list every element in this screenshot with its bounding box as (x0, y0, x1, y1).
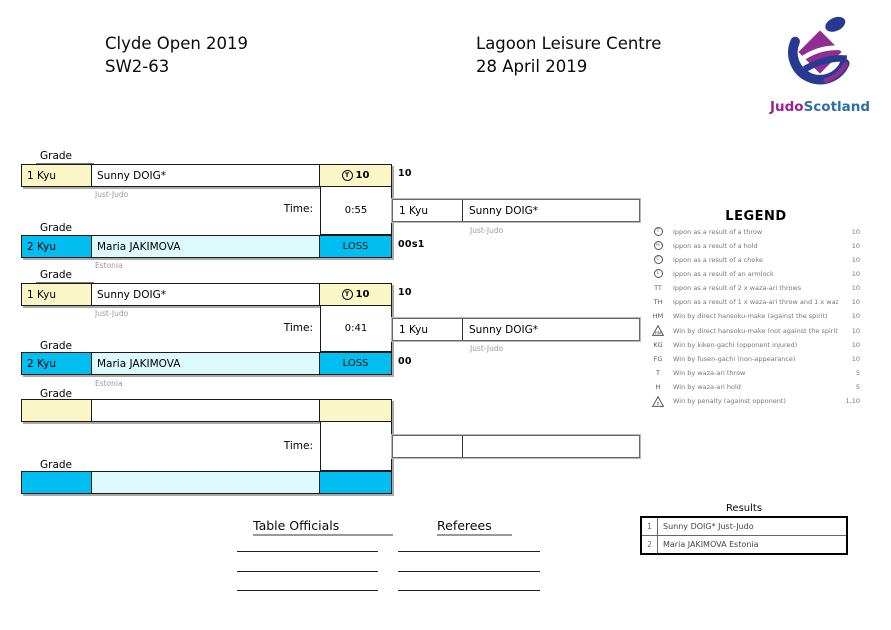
legend-text: Win by direct hansoku-make (not against … (666, 327, 838, 335)
match3-winner-box (392, 435, 640, 458)
outside-score: 00s1 (398, 239, 425, 250)
referees-label: Referees (437, 518, 512, 536)
legend-text: Win by fusen-gachi (non-appearance) (666, 355, 838, 363)
ippon-hold-icon: H (654, 241, 663, 250)
grade-cell: 1 Kyu (22, 165, 92, 186)
ippon-throw-icon: T (342, 289, 353, 300)
signature-line (237, 571, 378, 572)
match1-top-row: 1 Kyu Sunny DOIG* T 10 (21, 164, 392, 187)
venue-block: Lagoon Leisure Centre 28 April 2019 (476, 32, 661, 78)
legend-value: 10 (838, 327, 860, 335)
match3-bottom-row (21, 471, 392, 494)
legend-symbol: FG (650, 355, 666, 363)
grade-label: Grade (36, 150, 94, 164)
legend-text: Win by penalty (against opponent) (666, 397, 838, 405)
competitor-name-cell: Maria JAKIMOVA (92, 236, 320, 257)
competitor-name-cell: Sunny DOIG* (92, 165, 320, 186)
score-value: 10 (356, 170, 370, 181)
legend-value: 10 (838, 256, 860, 264)
category-title: SW2-63 (105, 55, 248, 78)
venue-name: Lagoon Leisure Centre (476, 32, 661, 55)
result-competitor: Sunny DOIG* Just-Judo (658, 518, 754, 535)
penalty-triangle-icon: P (652, 396, 664, 407)
club-label: Estonia (95, 379, 123, 388)
winner-name-cell: Sunny DOIG* (463, 200, 639, 221)
legend-text: Ippon as a result of 1 x waza-ari throw … (666, 298, 838, 306)
time-value-box (320, 422, 392, 471)
outside-score: 10 (398, 287, 412, 298)
competitor-name-cell: Sunny DOIG* (92, 284, 320, 305)
legend-symbol: T (650, 369, 666, 377)
legend-symbol: H (650, 383, 666, 391)
event-date: 28 April 2019 (476, 55, 661, 78)
legend-text: Ippon as a result of a choke (666, 256, 838, 264)
competitor-name-cell (92, 472, 320, 493)
legend-row: C Ippon as a result of a choke 10 (650, 254, 860, 265)
winner-grade-cell (393, 436, 463, 457)
legend-symbol: TH (650, 298, 666, 306)
match2-winner-box: 1 Kyu Sunny DOIG* (392, 318, 640, 341)
legend-row: T Ippon as a result of a throw 10 (650, 226, 860, 237)
competitor-name-cell (92, 400, 320, 421)
legend: T Ippon as a result of a throw 10 H Ippo… (650, 226, 860, 407)
grade-cell: 2 Kyu (22, 353, 92, 374)
legend-row: P Win by penalty (against opponent) 1,10 (650, 396, 860, 407)
legend-value: 5 (838, 369, 860, 377)
score-cell: T 10 (320, 165, 391, 186)
signature-line (398, 590, 540, 591)
legend-value: 10 (838, 284, 860, 292)
legend-row: H Win by waza-ari hold 5 (650, 382, 860, 393)
legend-value: 10 (838, 341, 860, 349)
legend-text: Ippon as a result of an armlock (666, 270, 838, 278)
loss-label: LOSS (343, 358, 369, 369)
logo-text-scotland: Scotland (804, 99, 870, 115)
ippon-throw-icon: T (342, 170, 353, 181)
legend-text: Ippon as a result of 2 x waza-ari throws (666, 284, 838, 292)
winner-grade-cell: 1 Kyu (393, 319, 463, 340)
winner-name-cell: Sunny DOIG* (463, 319, 639, 340)
legend-text: Win by waza-ari hold (666, 383, 838, 391)
competitor-name-cell: Maria JAKIMOVA (92, 353, 320, 374)
results-row: 1 Sunny DOIG* Just-Judo (642, 518, 846, 535)
winner-name-cell (463, 436, 639, 457)
time-label: Time: (200, 203, 313, 215)
judoscotland-logo: JudoScotland (770, 10, 870, 115)
table-officials-label: Table Officials (253, 518, 393, 536)
legend-row: HM Win by direct hansoku-make (against t… (650, 311, 860, 322)
results-table: 1 Sunny DOIG* Just-Judo 2 Maria JAKIMOVA… (640, 516, 848, 555)
club-label: Just-Judo (95, 309, 128, 318)
match2-bottom-row: 2 Kyu Maria JAKIMOVA LOSS (21, 352, 392, 375)
score-value: 10 (356, 289, 370, 300)
tournament-sheet: Clyde Open 2019 SW2-63 Lagoon Leisure Ce… (0, 0, 891, 630)
legend-value: 5 (838, 383, 860, 391)
winner-grade-cell: 1 Kyu (393, 200, 463, 221)
legend-row: KG Win by kiken-gachi (opponent injured)… (650, 339, 860, 350)
legend-value: 10 (838, 298, 860, 306)
legend-row: TH Ippon as a result of 1 x waza-ari thr… (650, 297, 860, 308)
judoscotland-logo-icon (776, 10, 864, 94)
loss-label: LOSS (343, 241, 369, 252)
grade-cell (22, 472, 92, 493)
score-cell: LOSS (320, 236, 391, 257)
signature-line (398, 571, 540, 572)
result-competitor: Maria JAKIMOVA Estonia (658, 536, 759, 553)
legend-text: Win by waza-ari throw (666, 369, 838, 377)
legend-row: TT Ippon as a result of 2 x waza-ari thr… (650, 283, 860, 294)
result-rank: 2 (642, 536, 658, 553)
legend-symbol: HM (650, 312, 666, 320)
legend-symbol: KG (650, 341, 666, 349)
logo-text-judo: Judo (770, 99, 804, 115)
grade-cell: 1 Kyu (22, 284, 92, 305)
legend-symbol: TT (650, 284, 666, 292)
legend-row: HM Win by direct hansoku-make (not again… (650, 325, 860, 336)
signature-line (237, 590, 378, 591)
grade-label: Grade (36, 269, 94, 283)
club-label: Estonia (95, 261, 123, 270)
svg-text:HM: HM (655, 330, 662, 335)
legend-row: L Ippon as a result of an armlock 10 (650, 268, 860, 279)
grade-cell (22, 400, 92, 421)
score-cell: T 10 (320, 284, 391, 305)
judoscotland-logo-text: JudoScotland (770, 99, 870, 115)
time-label: Time: (200, 322, 313, 334)
result-rank: 1 (642, 518, 658, 535)
score-cell (320, 400, 391, 421)
winner-club-label: Just-Judo (470, 226, 503, 235)
score-cell (320, 472, 391, 493)
outside-score: 00 (398, 356, 412, 367)
legend-row: FG Win by fusen-gachi (non-appearance) 1… (650, 353, 860, 364)
grade-cell: 2 Kyu (22, 236, 92, 257)
legend-value: 10 (838, 228, 860, 236)
time-value-box: 0:55 (320, 187, 392, 235)
legend-text: Win by direct hansoku-make (against the … (666, 312, 838, 320)
club-label: Just-Judo (95, 190, 128, 199)
svg-text:P: P (657, 401, 660, 406)
winner-club-label: Just-Judo (470, 344, 503, 353)
results-title: Results (640, 503, 848, 514)
outside-score: 10 (398, 168, 412, 179)
signature-line (398, 551, 540, 552)
ippon-throw-icon: T (654, 227, 663, 236)
grade-label: Grade (36, 222, 94, 236)
legend-text: Win by kiken-gachi (opponent injured) (666, 341, 838, 349)
results-row: 2 Maria JAKIMOVA Estonia (642, 535, 846, 553)
legend-text: Ippon as a result of a throw (666, 228, 838, 236)
legend-row: T Win by waza-ari throw 5 (650, 368, 860, 379)
hansoku-make-triangle-icon: HM (652, 325, 664, 336)
ippon-armlock-icon: L (654, 269, 663, 278)
legend-value: 10 (838, 270, 860, 278)
signature-line (237, 551, 378, 552)
legend-value: 10 (838, 242, 860, 250)
match1-winner-box: 1 Kyu Sunny DOIG* (392, 199, 640, 222)
legend-value: 1,10 (838, 397, 860, 405)
time-label: Time: (200, 440, 313, 452)
event-title-block: Clyde Open 2019 SW2-63 (105, 32, 248, 78)
legend-title: LEGEND (650, 209, 862, 224)
legend-row: H Ippon as a result of a hold 10 (650, 240, 860, 251)
legend-text: Ippon as a result of a hold (666, 242, 838, 250)
time-value-box: 0:41 (320, 306, 392, 352)
event-title: Clyde Open 2019 (105, 32, 248, 55)
legend-value: 10 (838, 355, 860, 363)
match3-top-row (21, 399, 392, 422)
score-cell: LOSS (320, 353, 391, 374)
legend-value: 10 (838, 312, 860, 320)
match1-bottom-row: 2 Kyu Maria JAKIMOVA LOSS (21, 235, 392, 258)
match2-top-row: 1 Kyu Sunny DOIG* T 10 (21, 283, 392, 306)
ippon-choke-icon: C (654, 255, 663, 264)
